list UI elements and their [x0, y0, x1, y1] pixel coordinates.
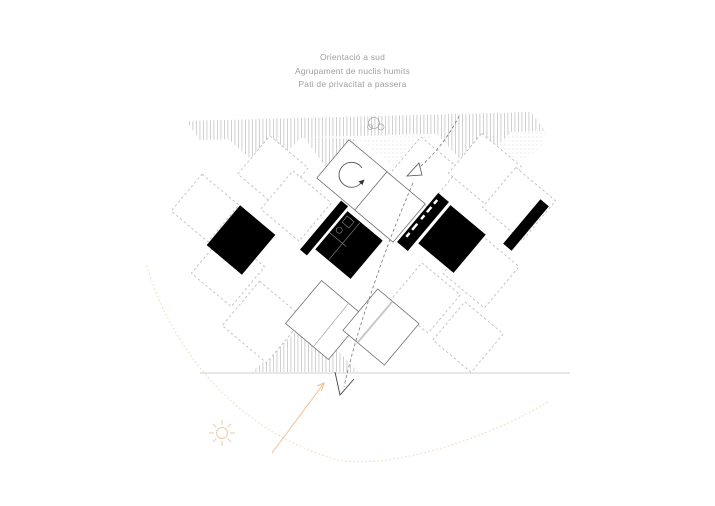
down-arrowhead-icon: [335, 372, 354, 395]
concept-plan-diagram: [0, 0, 715, 506]
south-arrow-icon: [272, 383, 324, 453]
sun-icon: [209, 420, 235, 446]
